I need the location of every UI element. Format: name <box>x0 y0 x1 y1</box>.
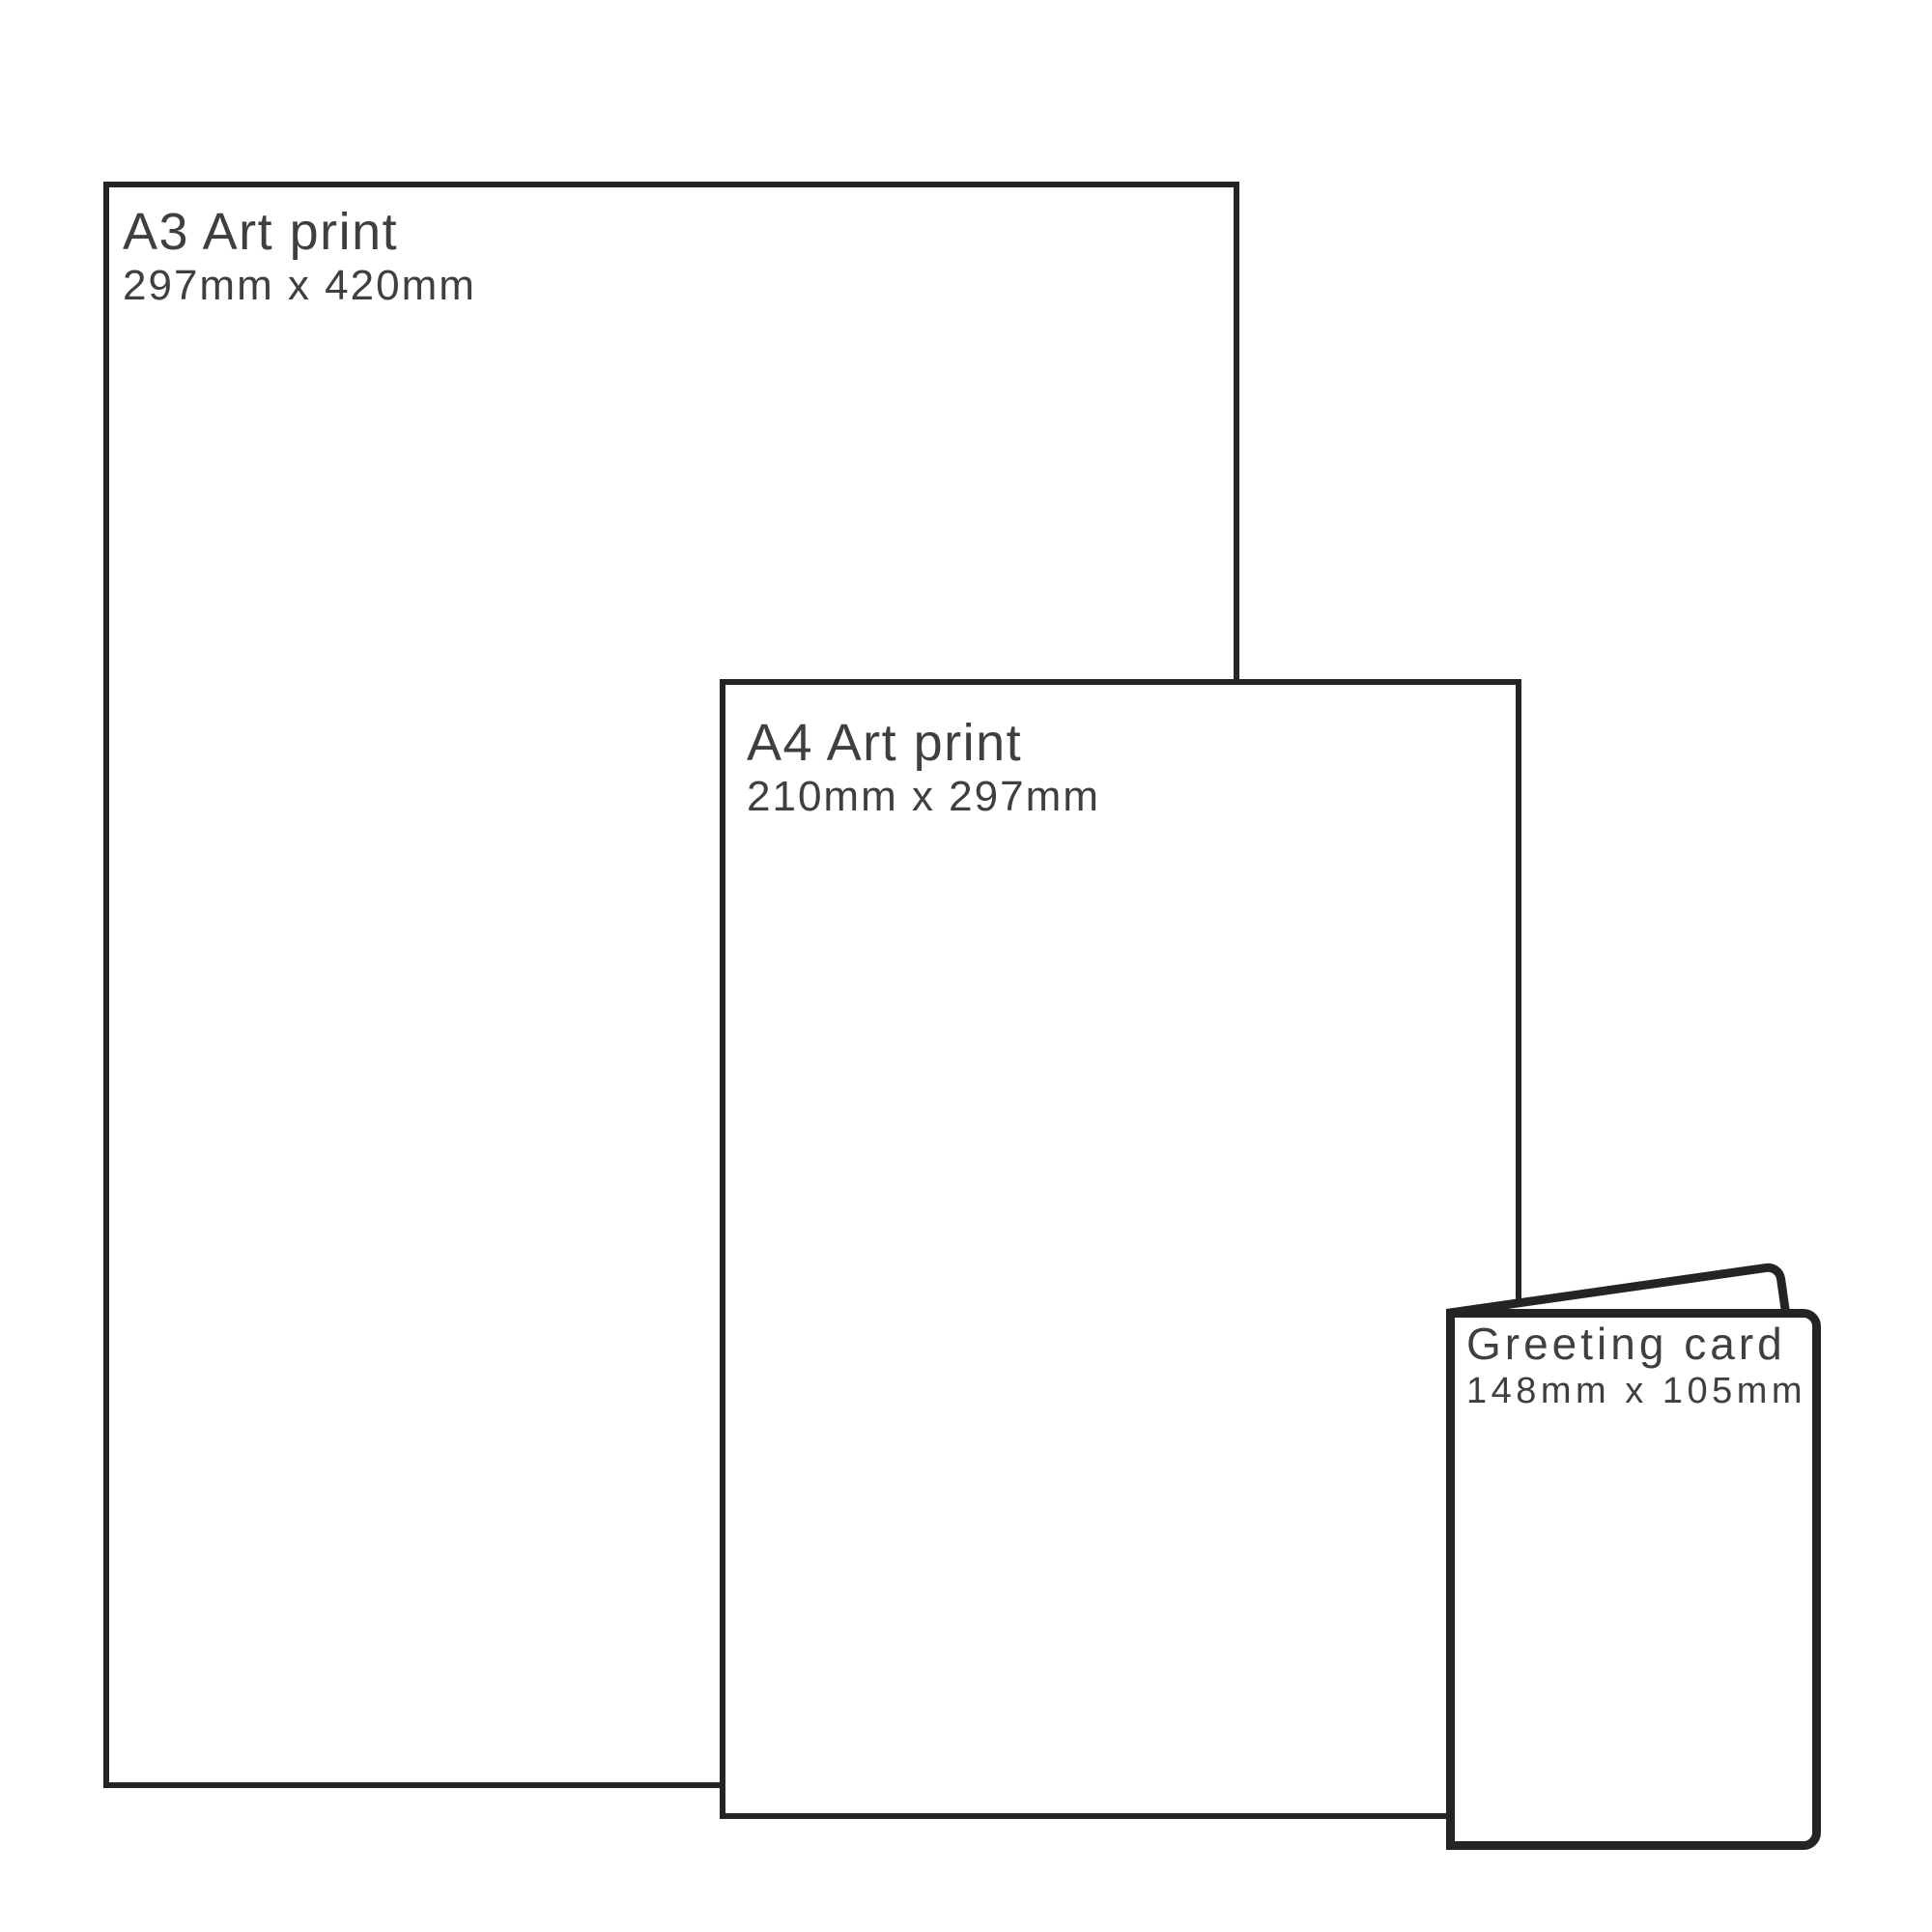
greeting-card-front-panel: Greeting card 148mm x 105mm <box>1446 1309 1821 1850</box>
print-size-comparison-diagram: A3 Art print 297mm x 420mm A4 Art print … <box>0 0 1932 1932</box>
a3-title: A3 Art print <box>123 203 1234 261</box>
a4-dimensions: 210mm x 297mm <box>747 772 1516 822</box>
greeting-card-label: Greeting card 148mm x 105mm <box>1455 1318 1812 1412</box>
a3-label: A3 Art print 297mm x 420mm <box>109 187 1234 311</box>
greeting-card-dimensions: 148mm x 105mm <box>1466 1370 1812 1413</box>
a3-dimensions: 297mm x 420mm <box>123 261 1234 311</box>
a4-title: A4 Art print <box>747 714 1516 772</box>
a4-label: A4 Art print 210mm x 297mm <box>725 685 1516 822</box>
a4-print-outline: A4 Art print 210mm x 297mm <box>720 679 1521 1819</box>
greeting-card-title: Greeting card <box>1466 1320 1812 1370</box>
